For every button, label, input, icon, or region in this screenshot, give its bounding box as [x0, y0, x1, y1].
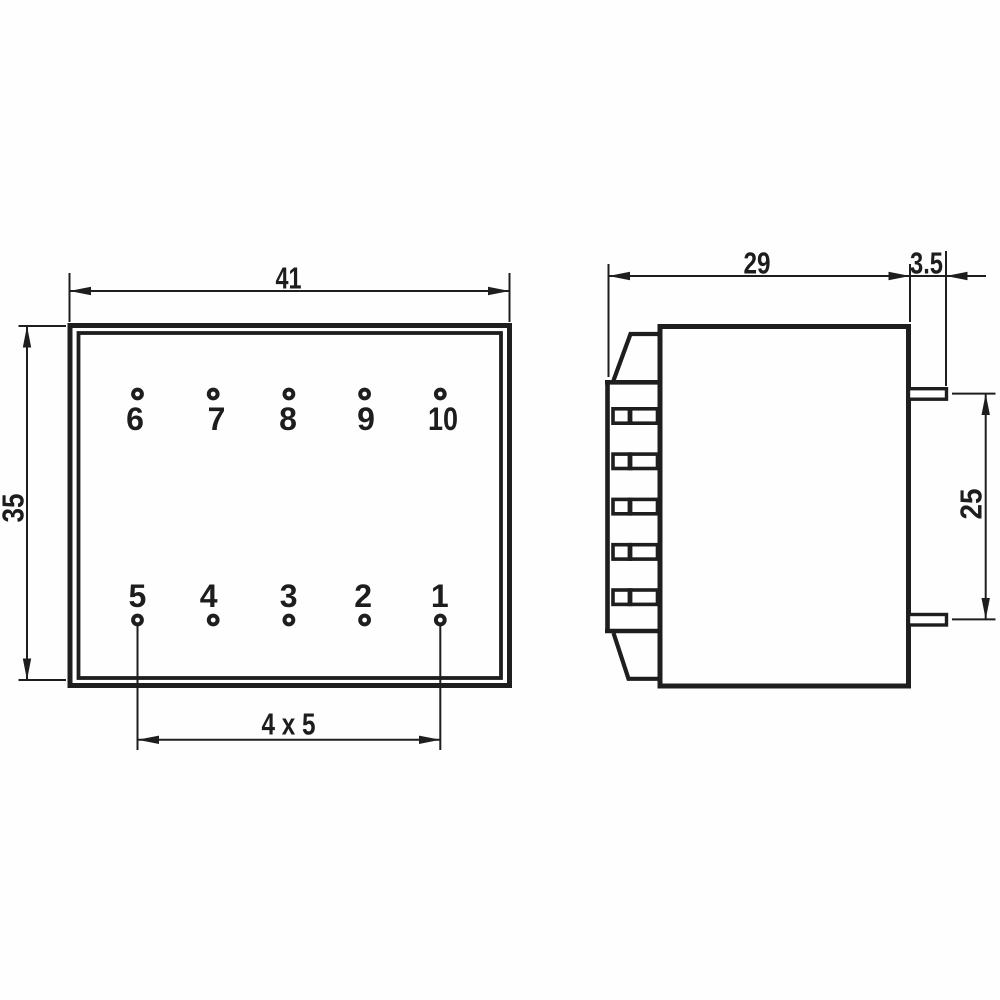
svg-text:2: 2 [354, 578, 372, 614]
svg-text:9: 9 [357, 401, 375, 437]
svg-text:7: 7 [208, 401, 226, 437]
svg-text:25: 25 [954, 489, 989, 520]
svg-text:29: 29 [744, 246, 771, 281]
svg-text:6: 6 [126, 401, 144, 437]
svg-text:1: 1 [431, 578, 449, 614]
svg-text:8: 8 [279, 401, 297, 437]
svg-text:3: 3 [280, 578, 298, 614]
svg-text:5: 5 [129, 578, 147, 614]
svg-text:35: 35 [0, 494, 31, 523]
svg-text:10: 10 [428, 401, 458, 437]
svg-text:3.5: 3.5 [910, 246, 943, 281]
svg-text:41: 41 [276, 261, 302, 296]
svg-text:4 x 5: 4 x 5 [262, 707, 316, 742]
svg-text:4: 4 [200, 578, 218, 614]
